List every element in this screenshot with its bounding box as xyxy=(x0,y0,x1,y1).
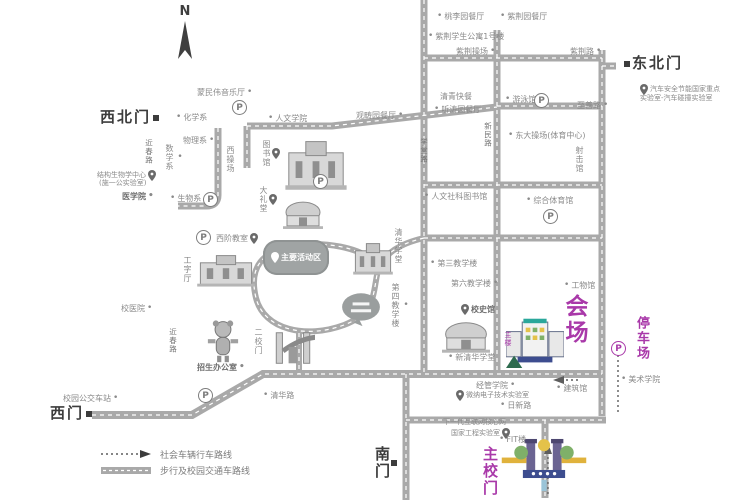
poi-dot-icon: • xyxy=(621,375,626,384)
structural-biology-center-text: 结构生物学中心 xyxy=(97,172,146,179)
gate-square-icon xyxy=(86,411,92,417)
road-icon xyxy=(100,465,152,475)
north-arrow-icon xyxy=(176,19,194,61)
compass-n-label: N xyxy=(180,4,191,19)
location-pin-icon xyxy=(269,194,277,205)
xuetang-road-text: 学堂路 xyxy=(420,138,428,164)
sem-school-text: 经管学院 xyxy=(476,382,508,390)
qinghua-road-text: 清华路 xyxy=(270,392,294,400)
poi-dot-icon: • xyxy=(424,192,429,201)
admissions-office-label: 招生办公室• xyxy=(197,363,245,372)
humanities-library-text: 人文社科图书馆 xyxy=(431,193,487,201)
school-hospital-text: 校医院 xyxy=(121,305,145,313)
mengminwei-hall-text: 蒙民伟音乐厅 xyxy=(197,89,245,97)
poi-dot-icon: • xyxy=(239,363,245,372)
architecture-building-label: •建筑馆 xyxy=(556,384,587,393)
northeast-gate-text: 东北门 xyxy=(632,56,683,71)
no4-teaching-building-label: •第四教学楼 xyxy=(391,283,410,328)
main-campus-gate-label: 主校门 xyxy=(482,446,497,497)
xijie-classroom-label: 西阶教室 xyxy=(216,233,258,244)
main-building-illustration xyxy=(506,312,564,372)
zhishan-road-text: 至善路 xyxy=(577,102,601,110)
zijing-road-label: 紫荆路• xyxy=(570,47,601,56)
gongziting-label: 工字厅 xyxy=(183,256,191,283)
second-gate-label: 二校门 xyxy=(254,328,262,355)
new-tsinghua-hall-text: 新清华学堂 xyxy=(455,354,495,362)
venue-text: 会场 xyxy=(562,294,585,346)
legend: 社会车辆行车路线 步行及校园交通车路线 xyxy=(100,446,250,478)
biology-dept-text: 生物系 xyxy=(177,195,201,203)
xinmin-road-text: 新民路 xyxy=(484,122,492,148)
poi-dot-icon: • xyxy=(493,279,498,288)
poi-dot-icon: • xyxy=(263,391,268,400)
grand-auditorium-text: 大礼堂 xyxy=(259,186,267,213)
poi-dot-icon: • xyxy=(268,114,273,123)
zijing-dorm-1-label: •紫荆学生公寓1号楼 xyxy=(428,32,504,41)
engineering-physics-building-text: 工物馆 xyxy=(571,282,595,290)
auditorium-dome-illustration xyxy=(278,197,328,235)
parking-venue-parking-icon: P xyxy=(611,341,626,356)
poi-dot-icon: • xyxy=(176,113,181,122)
parking-gymnasium-parking-icon: P xyxy=(543,209,558,224)
zijing-playground-label: 紫荆操场• xyxy=(456,47,495,56)
poi-dot-icon: • xyxy=(175,152,184,163)
medical-school-label: 医学院• xyxy=(122,192,154,201)
second-gate-text: 二校门 xyxy=(254,328,262,355)
physics-dept-text: 物理系 xyxy=(183,137,207,145)
east-playground-label: •东大操场(体育中心) xyxy=(508,131,586,140)
campus-map: N 西北门东北门西门南门主校门会场停车场主楼汽车安全节能国家重点实验室-汽车碰撞… xyxy=(0,0,750,500)
humanities-library-label: •人文社科图书馆 xyxy=(424,192,487,201)
tingtaoyuan-canteen-label: •听涛园餐厅 xyxy=(434,105,481,114)
library-text: 图书馆 xyxy=(262,140,270,167)
venue-label: 会场 xyxy=(562,294,585,346)
poi-dot-icon: • xyxy=(596,47,601,56)
ngi-lab-line2-text: 国家工程实验室 xyxy=(451,430,500,437)
west-playground-label: 西操场 xyxy=(226,146,234,173)
no3-teaching-building-label: •第三教学楼 xyxy=(430,259,477,268)
parking-lot-text: 停车场 xyxy=(635,316,648,361)
northeast-gate-label: 东北门 xyxy=(624,56,683,71)
history-museum-text: 校史馆 xyxy=(471,306,495,314)
shooting-range-label: 射击馆 xyxy=(575,146,583,173)
humanities-school-text: 人文学院 xyxy=(275,115,307,123)
location-pin-icon xyxy=(461,304,469,315)
parking-biology-parking-icon: P xyxy=(203,192,218,207)
zijinyuan-canteen-text: 紫荆园餐厅 xyxy=(507,13,547,21)
fit-building-text: FIT楼 xyxy=(506,436,526,444)
qinghua-xuetang-label: 清华学堂 xyxy=(394,228,402,264)
second-gate-illustration xyxy=(271,321,315,372)
poi-dot-icon: • xyxy=(437,12,442,21)
sem-school-label: 经管学院• xyxy=(476,381,515,390)
poi-dot-icon: • xyxy=(490,47,495,56)
xinmin-road-label: 新民路 xyxy=(484,122,492,148)
poi-dot-icon: • xyxy=(508,131,513,140)
poi-dot-icon: • xyxy=(448,353,453,362)
engineering-physics-building-label: •工物馆 xyxy=(564,281,595,290)
swimming-pool-label: •游泳馆 xyxy=(505,95,536,104)
poi-dot-icon: • xyxy=(148,192,154,201)
poi-dot-icon: • xyxy=(603,101,608,110)
parking-lot-label: 停车场 xyxy=(635,316,648,361)
poi-dot-icon: • xyxy=(556,384,561,393)
east-playground-text: 东大操场(体育中心) xyxy=(515,132,585,140)
campus-bus-stop-text: 校园公交车站 xyxy=(63,395,111,403)
poi-dot-icon: • xyxy=(526,196,531,205)
gate-square-icon xyxy=(153,115,159,121)
zhishan-road-label: 至善路• xyxy=(577,101,608,110)
location-pin-icon xyxy=(148,170,156,181)
poi-dot-icon: • xyxy=(428,32,433,41)
legend-row-social-vehicles: 社会车辆行车路线 xyxy=(100,446,250,462)
poi-dot-icon: • xyxy=(500,12,505,21)
humanities-school-label: •人文学院 xyxy=(268,114,307,123)
gymnasium-label: •综合体育馆 xyxy=(526,196,573,205)
art-school-text: 美术学院 xyxy=(628,376,660,384)
qinghua-xuetang-text: 清华学堂 xyxy=(394,228,402,264)
main-building-label: 主楼 xyxy=(504,331,511,347)
main-campus-gate-text: 主校门 xyxy=(482,446,497,497)
gate-square-icon xyxy=(391,460,397,466)
math-dept-text: 数学系 xyxy=(165,144,173,171)
qingqing-fastfood-text: 清青快餐 xyxy=(440,93,472,101)
parking-swimming-parking-icon: P xyxy=(534,93,549,108)
tingtaoyuan-canteen-text: 听涛园餐厅 xyxy=(441,106,481,114)
poi-dot-icon: • xyxy=(247,88,252,97)
swimming-pool-text: 游泳馆 xyxy=(512,96,536,104)
no6-teaching-building-label: 第六教学楼• xyxy=(451,279,498,288)
grand-auditorium-label: 大礼堂 xyxy=(259,186,277,213)
no3-teaching-building-text: 第三教学楼 xyxy=(437,260,477,268)
compass: N xyxy=(176,4,194,61)
jinchun-road-north-text: 近春路 xyxy=(145,139,153,165)
school-hospital-label: 校医院• xyxy=(121,304,152,313)
parking-west-gate-parking-icon: P xyxy=(198,388,213,403)
parking-auditorium-parking-icon: P xyxy=(313,174,328,189)
poi-dot-icon: • xyxy=(113,394,118,403)
zijing-dorm-1-text: 紫荆学生公寓1号楼 xyxy=(435,33,504,41)
poi-dot-icon: • xyxy=(398,111,403,120)
admissions-office-text: 招生办公室 xyxy=(197,364,237,372)
main-activity-area-label: 主要活动区 xyxy=(263,240,329,275)
guanchouyuan-canteen-text: 观畴园餐厅 xyxy=(356,112,396,120)
south-gate-label: 南门 xyxy=(374,446,397,480)
poi-dot-icon: • xyxy=(209,136,214,145)
location-pin-icon xyxy=(250,233,258,244)
poi-dot-icon: • xyxy=(505,95,510,104)
jinchun-road-south-label: 近春路 xyxy=(169,328,177,354)
location-pin-icon xyxy=(271,252,279,263)
xuetang-road-label: 学堂路 xyxy=(420,138,428,164)
parking-mengminwei-parking-icon: P xyxy=(232,100,247,115)
mengminwei-hall-label: 蒙民伟音乐厅• xyxy=(197,88,252,97)
poi-dot-icon: • xyxy=(147,304,152,313)
fit-building-label: •FIT楼 xyxy=(499,435,526,444)
poi-dot-icon: • xyxy=(499,435,504,444)
xijie-classroom-text: 西阶教室 xyxy=(216,235,248,243)
chemistry-dept-label: •化学系 xyxy=(176,113,207,122)
architecture-building-text: 建筑馆 xyxy=(563,385,587,393)
zijing-playground-text: 紫荆操场 xyxy=(456,48,488,56)
main-building-text: 主楼 xyxy=(504,331,511,347)
main-activity-area-text: 主要活动区 xyxy=(281,254,321,262)
new-tsinghua-hall-label: •新清华学堂 xyxy=(448,353,495,362)
no4-teaching-building-text: 第四教学楼 xyxy=(391,283,399,328)
biology-dept-label: •生物系 xyxy=(170,194,201,203)
shiyigong-lab-text: (施一公实验室) xyxy=(99,180,146,187)
south-gate-text: 南门 xyxy=(374,446,389,480)
physics-dept-label: 物理系• xyxy=(183,136,214,145)
gate-square-icon xyxy=(624,61,630,67)
west-gate-text: 西门 xyxy=(50,406,84,421)
poi-dot-icon: • xyxy=(434,105,439,114)
northwest-gate-label: 西北门 xyxy=(100,110,159,125)
microelectronics-lab-text: 微纳电子技术实验室 xyxy=(466,392,529,399)
west-playground-text: 西操场 xyxy=(226,146,234,173)
northwest-gate-text: 西北门 xyxy=(100,110,151,125)
microelectronics-lab-label: 微纳电子技术实验室 xyxy=(456,390,529,401)
medical-school-text: 医学院 xyxy=(122,193,146,201)
shiyigong-lab-label: (施一公实验室) xyxy=(99,180,146,187)
poi-dot-icon: • xyxy=(564,281,569,290)
rixin-road-text: 日新路 xyxy=(507,402,531,410)
legend-campus-route-label: 步行及校园交通车路线 xyxy=(160,464,250,477)
poi-dot-icon: • xyxy=(430,259,435,268)
no6-teaching-building-text: 第六教学楼 xyxy=(451,280,491,288)
mascot-illustration xyxy=(202,318,244,368)
poi-dot-icon: • xyxy=(500,401,505,410)
location-pin-icon xyxy=(456,390,464,401)
auto-safety-lab-line1-text: 汽车安全节能国家重点 xyxy=(650,86,720,93)
library-label: 图书馆 xyxy=(262,140,280,167)
parking-xijie-parking-icon: P xyxy=(196,230,211,245)
poi-dot-icon: • xyxy=(170,194,175,203)
qingqing-fastfood-label: 清青快餐 xyxy=(440,93,472,101)
ngi-lab-line1-label: 下一代互联网核心网 xyxy=(443,419,506,426)
campus-bus-stop-label: 校园公交车站• xyxy=(63,394,118,403)
location-pin-icon xyxy=(272,148,280,159)
legend-social-vehicles-label: 社会车辆行车路线 xyxy=(160,448,232,461)
dotted-route-icon xyxy=(100,449,152,459)
west-gate-label: 西门 xyxy=(50,406,92,421)
taoliyuan-canteen-text: 桃李园餐厅 xyxy=(444,13,484,21)
shooting-range-text: 射击馆 xyxy=(575,146,583,173)
auto-safety-lab-line2-label: 实验室-汽车碰撞实验室 xyxy=(640,95,713,102)
history-museum-label: 校史馆 xyxy=(461,304,495,315)
qinghua-xuetang-building-illustration xyxy=(351,240,395,280)
zijinyuan-canteen-label: •紫荆园餐厅 xyxy=(500,12,547,21)
gymnasium-text: 综合体育馆 xyxy=(533,197,573,205)
math-dept-label: •数学系 xyxy=(165,144,184,171)
poi-dot-icon: • xyxy=(510,381,515,390)
zijing-road-text: 紫荆路 xyxy=(570,48,594,56)
chemistry-dept-text: 化学系 xyxy=(183,114,207,122)
poi-dot-icon: • xyxy=(401,300,410,311)
rixin-road-label: •日新路 xyxy=(500,401,531,410)
gongziting-text: 工字厅 xyxy=(183,256,191,283)
guanchouyuan-canteen-label: 观畴园餐厅• xyxy=(356,111,403,120)
taoliyuan-canteen-label: •桃李园餐厅 xyxy=(437,12,484,21)
speech-bubble-sculpture-illustration xyxy=(340,291,382,333)
qinghua-road-label: •清华路 xyxy=(263,391,294,400)
jinchun-road-north-label: 近春路 xyxy=(145,139,153,165)
art-school-label: •美术学院 xyxy=(621,375,660,384)
jinchun-road-south-text: 近春路 xyxy=(169,328,177,354)
auto-safety-lab-line2-text: 实验室-汽车碰撞实验室 xyxy=(640,95,713,102)
legend-row-campus-route: 步行及校园交通车路线 xyxy=(100,462,250,478)
gongziting-building-illustration xyxy=(194,252,258,292)
ngi-lab-line1-text: 下一代互联网核心网 xyxy=(443,419,506,426)
